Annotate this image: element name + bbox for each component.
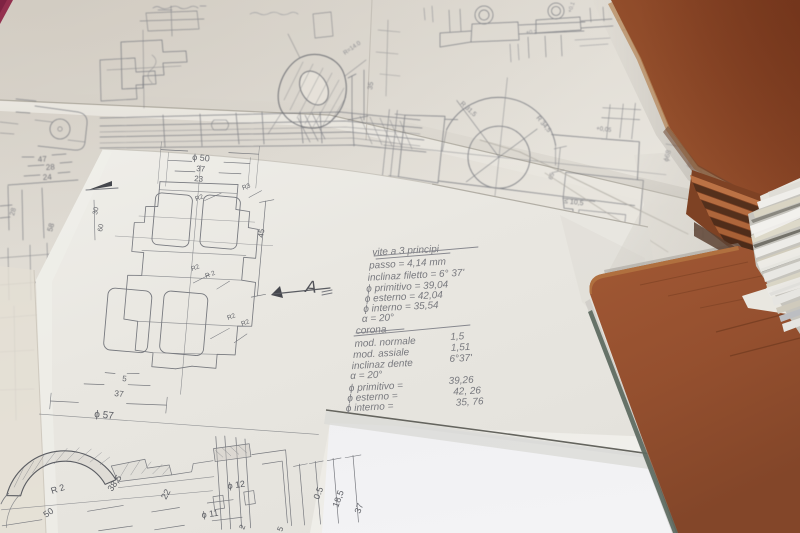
svg-text:35: 35 [367, 81, 375, 90]
svg-text:1,5: 1,5 [450, 331, 465, 343]
svg-text:24: 24 [43, 172, 53, 182]
svg-text:ϕ 57: ϕ 57 [94, 409, 115, 422]
svg-text:37: 37 [196, 164, 206, 174]
svg-text:28: 28 [46, 162, 56, 172]
svg-text:+0.2: +0.2 [526, 30, 537, 36]
svg-text:23: 23 [194, 174, 204, 184]
svg-text:ϕ 50: ϕ 50 [192, 152, 210, 163]
svg-text:6°37': 6°37' [449, 353, 473, 365]
svg-text:35, 76: 35, 76 [455, 396, 484, 408]
svg-text:α = 20°: α = 20° [350, 370, 383, 383]
svg-text:A: A [304, 277, 318, 297]
svg-text:37: 37 [114, 388, 125, 399]
svg-text:α = 20°: α = 20° [362, 312, 395, 325]
